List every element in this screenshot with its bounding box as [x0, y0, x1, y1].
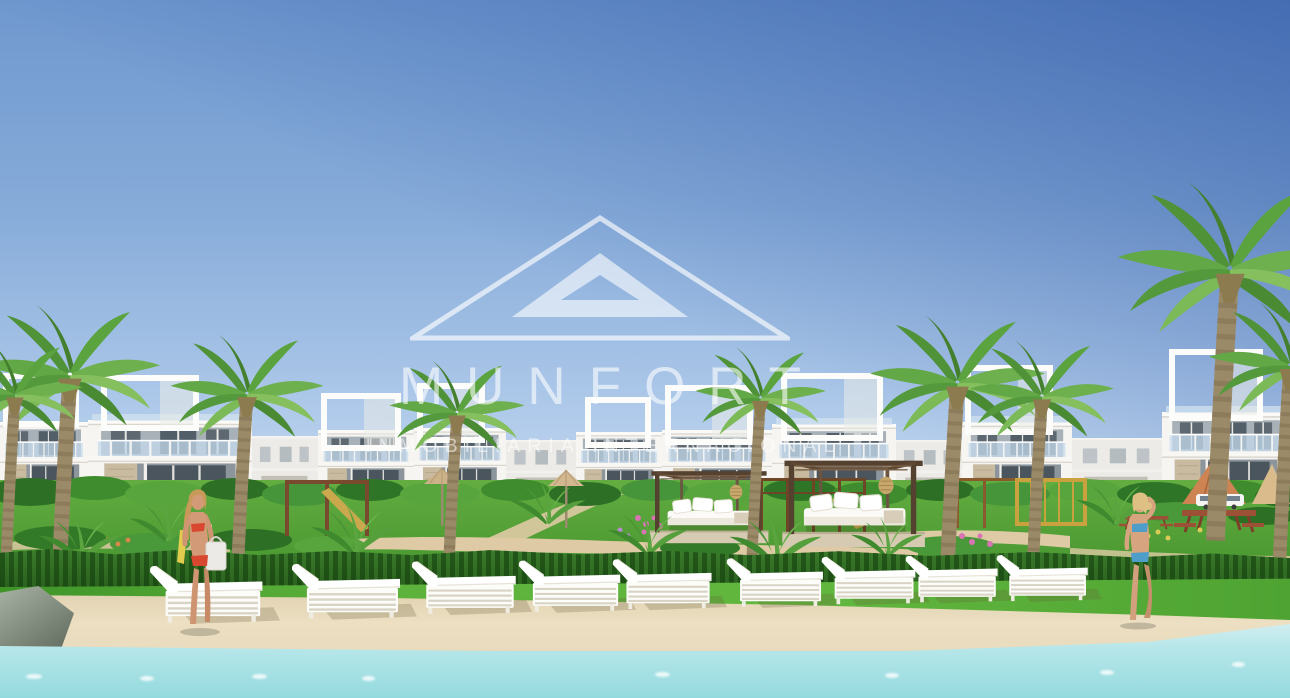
sun-lounger [292, 564, 417, 620]
sun-lounger [727, 558, 838, 607]
pool-ripple [362, 676, 375, 681]
sun-lounger [613, 559, 727, 610]
pool-ripple [26, 674, 42, 679]
pool-ripple [140, 676, 154, 681]
sun-lounger [906, 556, 1012, 603]
pool-ripple [655, 672, 670, 677]
pool-ripple [252, 674, 267, 679]
brand-tagline: INMOBILIARIA INTERNACIONAL [359, 435, 842, 458]
brand-name: MUNFORT [376, 356, 824, 417]
pool-ripple [885, 673, 899, 678]
pool-ripple [1100, 670, 1114, 675]
munfort-triangle-logo-icon [410, 214, 790, 342]
resort-render: MUNFORT INMOBILIARIA INTERNACIONAL [0, 0, 1290, 698]
woman-blue-bikini [1104, 490, 1176, 632]
sun-lounger [412, 562, 532, 615]
woman-red-bikini [160, 486, 244, 638]
pool-ripple [1232, 662, 1245, 667]
sun-lounger [997, 555, 1102, 602]
sun-loungers [140, 544, 1220, 636]
